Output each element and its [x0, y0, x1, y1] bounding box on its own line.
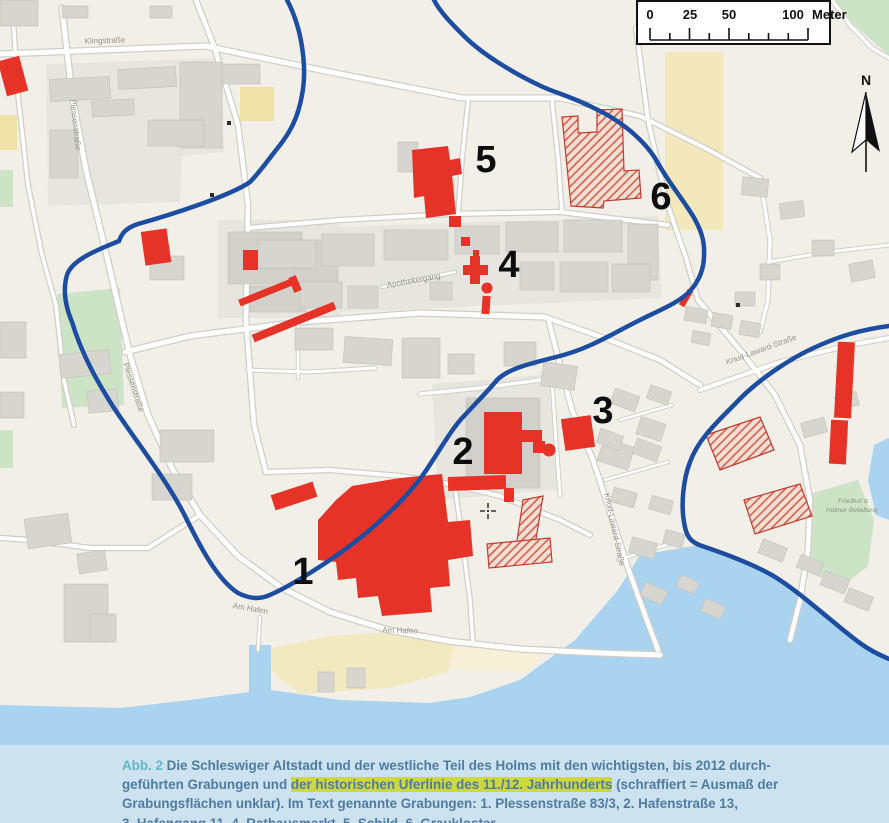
scale-bar: 0 25 50 100 Meter [637, 1, 847, 44]
site-label-4: 4 [498, 244, 519, 286]
caption-line-4: 3. Hafengang 11, 4. Rathausmarkt, 5. Sch… [122, 814, 849, 823]
site-label-5: 5 [475, 139, 496, 181]
figure-number-label: Abb. 2 [122, 758, 163, 773]
scale-tick-25: 25 [683, 7, 697, 22]
caption-line2-pre: geführten Grabungen und [122, 777, 291, 792]
caption-line1-text: Die Schleswiger Altstadt und der westlic… [163, 758, 771, 773]
caption-line-2: geführten Grabungen und der historischen… [122, 775, 849, 794]
north-arrow-label: N [861, 72, 871, 88]
scale-tick-100: 100 [782, 7, 804, 22]
site-label-1: 1 [292, 551, 313, 593]
scale-tick-50: 50 [722, 7, 736, 22]
figure-page: Klingstraße Plessenstraße Plessenstraße … [0, 0, 889, 823]
caption-highlight-text: der historischen Uferlinie des 11./12. J… [291, 777, 613, 792]
site-label-3: 3 [592, 390, 613, 432]
caption-line-1: Abb. 2 Die Schleswiger Altstadt und der … [122, 756, 849, 775]
street-label-klingstrasse: Klingstraße [85, 35, 126, 45]
site-label-6: 6 [650, 176, 671, 218]
poi-label-friedhof-2: Holmer Beliebung [826, 507, 878, 514]
poi-label-friedhof-1: Friedhof d. [838, 498, 869, 505]
schleswig-map: Klingstraße Plessenstraße Plessenstraße … [0, 0, 889, 745]
map-canvas: Klingstraße Plessenstraße Plessenstraße … [0, 0, 889, 745]
scale-tick-0: 0 [646, 7, 653, 22]
site-label-2: 2 [452, 431, 473, 473]
street-label-am-hafen-2: Am Hafen [382, 625, 418, 635]
caption-line2-post: (schraffiert = Ausmaß der [612, 777, 778, 792]
caption-line-3: Grabungsflächen unklar). Im Text genannt… [122, 794, 849, 813]
figure-caption: Abb. 2 Die Schleswiger Altstadt und der … [0, 745, 889, 823]
scale-unit: Meter [812, 7, 847, 22]
